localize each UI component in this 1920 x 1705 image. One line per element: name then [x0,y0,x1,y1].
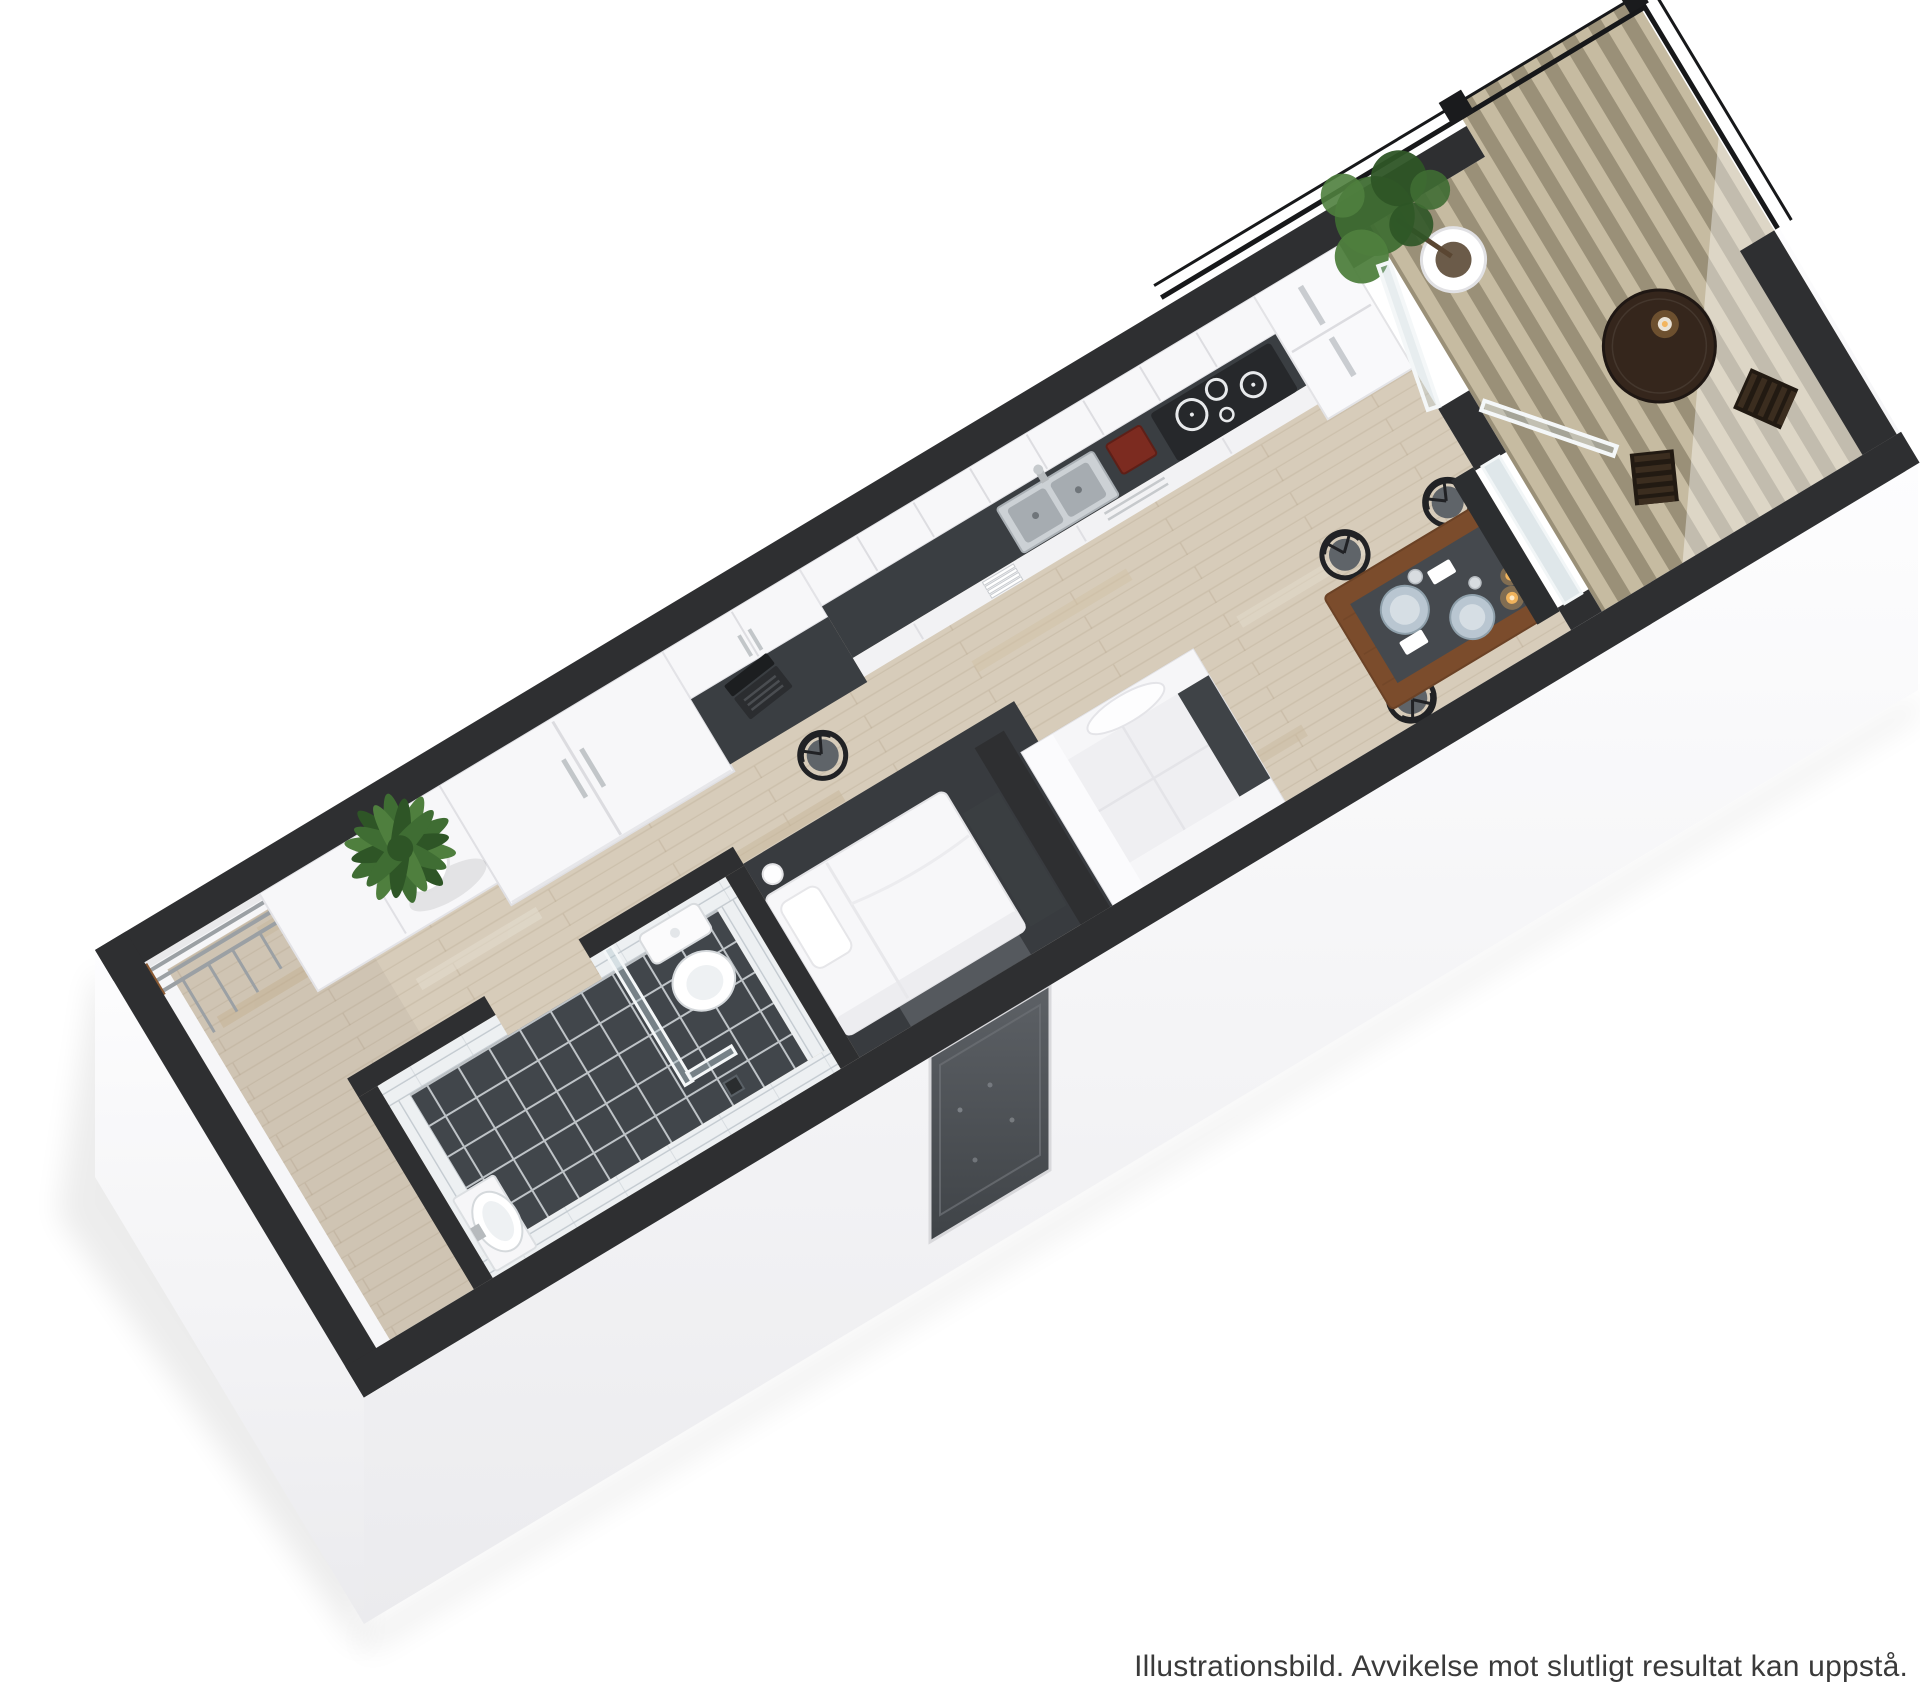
floor-plan-illustration: Illustrationsbild. Avvikelse mot slutlig… [0,0,1920,1705]
balcony-chair [1630,449,1679,505]
caption: Illustrationsbild. Avvikelse mot slutlig… [1134,1650,1908,1683]
floor-plan-page: Illustrationsbild. Avvikelse mot slutlig… [0,0,1920,1705]
